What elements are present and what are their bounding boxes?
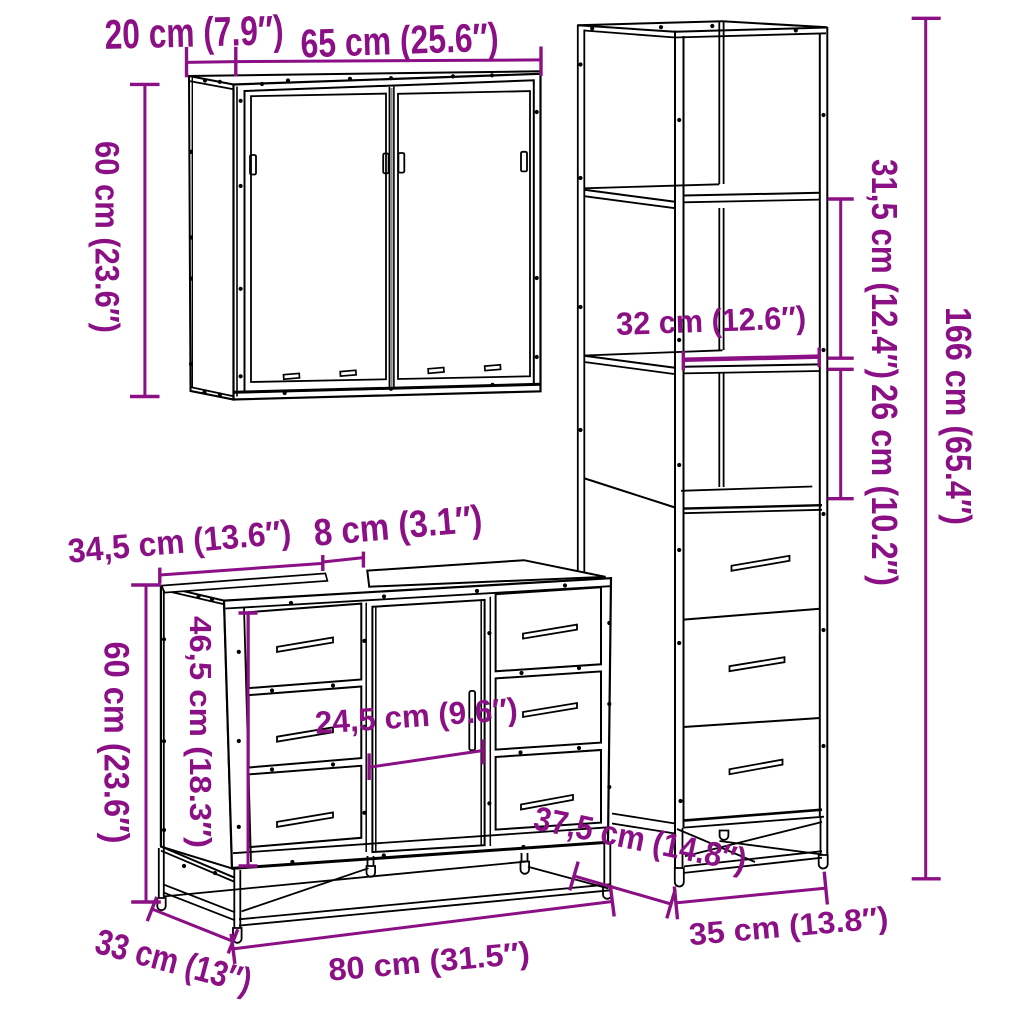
svg-text:26 cm (10.2″): 26 cm (10.2″) <box>864 384 905 586</box>
svg-text:31,5 cm (12.4″): 31,5 cm (12.4″) <box>864 159 905 379</box>
svg-text:166 cm (65.4″): 166 cm (65.4″) <box>938 307 979 525</box>
svg-text:60 cm (23.6″): 60 cm (23.6″) <box>97 642 136 844</box>
svg-text:46,5 cm (18.3″): 46,5 cm (18.3″) <box>183 616 218 848</box>
svg-text:20 cm (7.9″): 20 cm (7.9″) <box>104 6 284 58</box>
svg-text:60 cm (23.6″): 60 cm (23.6″) <box>88 141 126 333</box>
svg-text:65 cm (25.6″): 65 cm (25.6″) <box>300 16 499 67</box>
svg-text:32 cm (12.6″): 32 cm (12.6″) <box>616 299 807 342</box>
